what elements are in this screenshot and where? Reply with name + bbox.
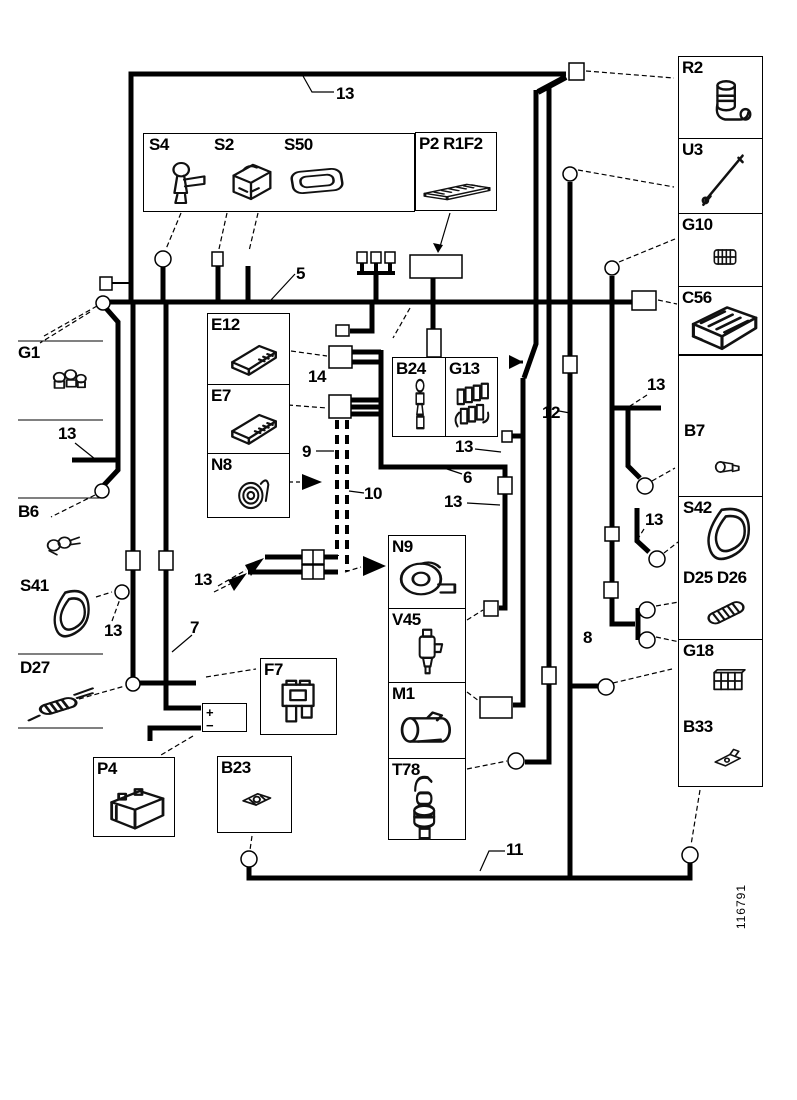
component-box-b24-g13: B24 G13 xyxy=(392,357,498,437)
arrowhead xyxy=(509,355,523,369)
wire-b7-branch xyxy=(628,408,640,478)
cell-v45: V45 xyxy=(389,608,465,682)
bracket-clip-icon xyxy=(232,777,280,819)
leader-13g xyxy=(630,395,647,406)
connector-circle xyxy=(639,632,655,648)
component-label-u3: U3 xyxy=(682,141,703,158)
leader-5 xyxy=(271,274,295,300)
leader-g18 xyxy=(613,669,672,683)
leader-g10 xyxy=(619,239,675,262)
leader-13-mid-b xyxy=(467,503,500,505)
leader-n9 xyxy=(345,567,361,572)
leader-t78 xyxy=(467,761,507,769)
leader-13-break xyxy=(112,599,120,621)
inline-connector xyxy=(604,582,618,598)
component-label-s2: S2 xyxy=(214,136,234,153)
component-label-m1: M1 xyxy=(392,685,415,702)
blade-fuse-icon xyxy=(271,675,329,733)
callout-12: 12 xyxy=(542,403,560,423)
leader-b24 xyxy=(393,308,410,338)
flat-board-icon xyxy=(420,173,494,207)
component-label-b7: B7 xyxy=(684,422,705,439)
leader-p2 xyxy=(439,213,450,250)
cell-n8: N8 xyxy=(208,453,289,519)
connector-circle xyxy=(649,551,665,567)
cell-g10: G10 xyxy=(679,213,762,286)
cell-e7: E7 xyxy=(208,384,289,453)
e12-connector xyxy=(329,346,352,368)
cable-splice-icon xyxy=(24,682,100,730)
connector-circle xyxy=(115,585,129,599)
arrowhead xyxy=(363,556,386,576)
cell-u3: U3 xyxy=(679,138,762,213)
callout-11: 11 xyxy=(506,840,523,860)
leader-s50 xyxy=(249,213,258,251)
cell-n9: N9 xyxy=(389,536,465,608)
inline-connector xyxy=(498,477,512,494)
component-label-c56: C56 xyxy=(682,289,712,306)
inline-connector xyxy=(605,527,619,541)
glow-rail-icon xyxy=(448,376,496,434)
callout-14: 14 xyxy=(308,367,326,387)
callout-6: 6 xyxy=(463,468,472,488)
wire-battery-minus xyxy=(150,728,201,741)
leader-11 xyxy=(480,851,505,871)
component-box-top-group: S4 S2 S50 xyxy=(143,133,415,212)
module-rounded-icon xyxy=(286,158,348,204)
connector-square xyxy=(212,252,223,266)
component-box-center: N9 V45 M1 T78 xyxy=(388,535,466,840)
horn-icon xyxy=(230,464,280,518)
ecu-box2-icon xyxy=(222,397,284,451)
leader-e7 xyxy=(288,405,327,408)
leader-b33 xyxy=(691,790,700,845)
leader-s4 xyxy=(166,213,181,249)
callout-13-mid-a: 13 xyxy=(455,437,473,457)
callout-9: 9 xyxy=(302,442,311,462)
leader-10 xyxy=(349,491,364,493)
leader-13d-b xyxy=(214,584,230,592)
connector-circle xyxy=(682,847,698,863)
leader-v45 xyxy=(467,610,483,620)
component-label-s50: S50 xyxy=(284,136,313,153)
component-label-s4: S4 xyxy=(149,136,169,153)
inline-connector xyxy=(159,551,173,570)
component-label-b33: B33 xyxy=(683,718,713,735)
connector-circle xyxy=(508,753,524,769)
connector-circle xyxy=(639,602,655,618)
figure-number: 116791 xyxy=(734,884,748,929)
callout-5: 5 xyxy=(296,264,305,284)
component-label-d25-d26: D25 D26 xyxy=(683,569,747,586)
component-label-b23: B23 xyxy=(221,759,251,776)
wire-m1-run xyxy=(513,378,523,705)
leader-p4 xyxy=(161,736,193,755)
component-label-b24: B24 xyxy=(396,360,426,377)
ribbed-block-icon xyxy=(705,660,751,702)
leader-13-mid-a xyxy=(475,449,501,452)
component-label-t78: T78 xyxy=(392,761,420,778)
switch-block-icon xyxy=(222,154,280,208)
plug-sensor-icon xyxy=(40,524,86,564)
bus-end-connector xyxy=(632,291,656,310)
cell-e12: E12 xyxy=(208,314,289,384)
leader-b23 xyxy=(250,836,252,850)
valve-icon xyxy=(403,623,453,681)
battery-terminal-box: + − xyxy=(202,703,247,732)
leader-e12 xyxy=(291,351,327,356)
v45-connector xyxy=(484,601,498,616)
component-label-v45: V45 xyxy=(392,611,421,628)
component-label-g18: G18 xyxy=(683,642,714,659)
cell-s42-d25: S42 D25 D26 xyxy=(679,496,762,639)
cell-m1: M1 xyxy=(389,682,465,758)
arrowhead xyxy=(302,474,322,490)
callout-13-right-b: 13 xyxy=(645,510,663,530)
component-box-p4: P4 xyxy=(93,757,175,837)
clip-sensor-icon xyxy=(705,738,749,776)
leader-f7 xyxy=(206,669,256,677)
leader-c56 xyxy=(658,300,677,304)
margin-label-g1: G1 xyxy=(18,343,40,363)
conn14-square xyxy=(336,325,349,336)
connector-circle xyxy=(637,478,653,494)
leader-b7 xyxy=(652,468,675,481)
component-box-ecu: E12 E7 N8 xyxy=(207,313,290,518)
b24-inlet xyxy=(427,329,441,357)
arrowhead xyxy=(433,243,443,253)
margin-label-d27: D27 xyxy=(20,658,50,678)
leader-g1-b xyxy=(40,312,90,343)
connector-square xyxy=(357,252,367,263)
blower-motor-icon xyxy=(393,552,463,606)
cell-t78: T78 xyxy=(389,758,465,841)
wiring-diagram-page: S4 S2 S50 P2 R1F2 R2 U3 G10 C56 B7 xyxy=(0,0,797,1100)
component-box-f7: F7 xyxy=(260,658,337,735)
cell-g18-b33: G18 B33 xyxy=(679,639,762,788)
component-box-p2: P2 R1F2 xyxy=(415,132,497,211)
margin-label-b6: B6 xyxy=(18,502,39,522)
callout-13-top: 13 xyxy=(336,84,354,104)
wire-conn14-top xyxy=(350,302,372,331)
cell-b7: B7 xyxy=(679,356,762,496)
stub-end-square xyxy=(502,431,512,442)
wire-bottom-bus xyxy=(249,863,690,878)
component-label-s42: S42 xyxy=(683,499,712,516)
bulb-cluster-icon xyxy=(45,360,93,400)
leader-13-g1 xyxy=(75,443,95,459)
leader-s42 xyxy=(664,542,678,553)
ecu-box-icon xyxy=(222,328,284,382)
component-label-r2: R2 xyxy=(682,59,703,76)
divider xyxy=(445,358,446,436)
connector-square xyxy=(569,63,584,80)
connector-circle xyxy=(126,677,140,691)
callout-13-g1: 13 xyxy=(58,424,76,444)
connector-circle xyxy=(95,484,109,498)
small-sender-icon xyxy=(705,448,751,486)
component-label-e12: E12 xyxy=(211,316,240,333)
callout-13-right-a: 13 xyxy=(647,375,665,395)
connector-square xyxy=(385,252,395,263)
callout-13-mid-b: 13 xyxy=(444,492,462,512)
connector-circle xyxy=(241,851,257,867)
wire-left-v2 xyxy=(166,302,201,708)
leader-u3 xyxy=(578,170,674,187)
leader-13-top xyxy=(303,76,334,92)
leader-7 xyxy=(172,635,192,652)
connector-circle xyxy=(598,679,614,695)
component-label-n8: N8 xyxy=(211,456,232,473)
inline-connector xyxy=(563,356,577,373)
connector-circle xyxy=(96,296,110,310)
wire-right-mid xyxy=(612,276,635,624)
inline-connector xyxy=(126,551,140,570)
component-box-right-bottom: B7 S42 D25 D26 G18 B33 xyxy=(678,355,763,787)
callout-8: 8 xyxy=(583,628,592,648)
relay-outline xyxy=(410,255,462,278)
leader-g1-a xyxy=(44,306,97,336)
starter-motor-icon xyxy=(393,699,461,757)
cell-c56: C56 xyxy=(679,286,762,356)
wire-funnel xyxy=(524,90,536,378)
wire-top-elbow xyxy=(538,77,566,92)
leader-m1 xyxy=(467,692,479,701)
margin-label-s41: S41 xyxy=(20,576,49,596)
component-label-g10: G10 xyxy=(682,216,713,233)
connector-circle xyxy=(605,261,619,275)
component-label-p4: P4 xyxy=(97,760,117,777)
connector-circle xyxy=(563,167,577,181)
cell-r2: R2 xyxy=(679,57,762,138)
pump-icon xyxy=(701,73,759,135)
inline-connector xyxy=(542,667,556,684)
arrowhead xyxy=(228,573,247,591)
sensor-chain-icon xyxy=(401,376,439,434)
sensor-key-icon xyxy=(158,158,216,208)
connector-square xyxy=(100,277,112,290)
component-box-right-top: R2 U3 G10 C56 xyxy=(678,56,763,355)
m1-connector xyxy=(480,697,512,718)
leader-13h xyxy=(639,529,644,537)
leader-s2 xyxy=(219,213,227,249)
callout-13-left: 13 xyxy=(104,621,122,641)
striped-connector-icon xyxy=(697,589,755,635)
connector-circle xyxy=(155,251,171,267)
connector-square xyxy=(371,252,381,263)
component-label-n9: N9 xyxy=(392,538,413,555)
callout-7: 7 xyxy=(190,618,199,638)
seal-ring-icon xyxy=(42,582,100,646)
component-label-f7: F7 xyxy=(264,661,283,678)
callout-10: 10 xyxy=(364,484,382,504)
component-label-p2: P2 R1F2 xyxy=(419,135,483,152)
leader-r2 xyxy=(586,71,674,78)
component-box-b23: B23 xyxy=(217,756,292,833)
e7-connector xyxy=(329,395,351,418)
callout-13-dual: 13 xyxy=(194,570,212,590)
dashed-wires xyxy=(337,420,347,571)
component-label-g13: G13 xyxy=(449,360,480,377)
minus-terminal-label: − xyxy=(206,719,214,732)
component-label-e7: E7 xyxy=(211,387,231,404)
ribbed-connector-icon xyxy=(705,236,745,278)
battery-icon xyxy=(100,778,170,834)
